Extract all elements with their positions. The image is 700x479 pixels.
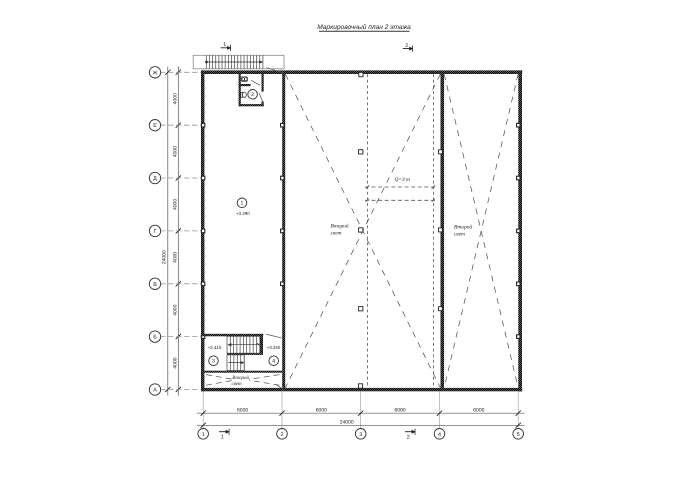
svg-text:2: 2 <box>281 432 284 438</box>
svg-text:4000: 4000 <box>172 357 178 368</box>
svg-text:6000: 6000 <box>237 407 248 413</box>
svg-text:4: 4 <box>438 432 441 438</box>
svg-text:Б: Б <box>153 335 157 341</box>
svg-text:Маркировочный план 2 этажа: Маркировочный план 2 этажа <box>317 24 411 31</box>
svg-text:4000: 4000 <box>172 146 178 157</box>
svg-text:Второй: Второй <box>232 375 249 381</box>
svg-text:4000: 4000 <box>172 252 178 263</box>
svg-text:Д: Д <box>153 176 157 182</box>
svg-text:2: 2 <box>251 92 254 98</box>
svg-text:+3.250: +3.250 <box>267 345 281 350</box>
svg-text:4000: 4000 <box>172 93 178 104</box>
svg-text:+2.410: +2.410 <box>208 345 222 350</box>
svg-text:6000: 6000 <box>473 407 484 413</box>
svg-text:свет: свет <box>331 230 342 236</box>
svg-text:24000: 24000 <box>161 250 167 264</box>
svg-text:А: А <box>153 388 157 394</box>
svg-text:+3.290: +3.290 <box>236 211 250 216</box>
svg-text:5: 5 <box>517 432 520 438</box>
svg-text:4: 4 <box>272 359 275 365</box>
svg-text:3: 3 <box>359 432 362 438</box>
svg-text:Второй: Второй <box>454 225 472 231</box>
svg-text:3: 3 <box>212 359 215 365</box>
svg-text:свет: свет <box>232 382 243 387</box>
svg-text:Г: Г <box>154 229 157 235</box>
svg-text:1: 1 <box>241 201 244 207</box>
svg-text:1: 1 <box>221 434 224 440</box>
svg-text:6000: 6000 <box>316 407 327 413</box>
svg-text:24000: 24000 <box>340 419 354 425</box>
svg-text:4000: 4000 <box>172 199 178 210</box>
svg-text:4000: 4000 <box>172 304 178 315</box>
svg-text:В: В <box>153 282 157 288</box>
svg-text:Второй: Второй <box>331 223 349 229</box>
svg-text:1: 1 <box>223 42 226 48</box>
svg-text:Е: Е <box>153 123 157 129</box>
svg-text:1: 1 <box>202 432 205 438</box>
svg-text:6000: 6000 <box>395 407 406 413</box>
svg-text:Ж: Ж <box>153 70 158 76</box>
svg-text:Q=3 т: Q=3 т <box>394 177 410 183</box>
svg-text:2: 2 <box>405 43 408 49</box>
svg-text:2: 2 <box>407 434 410 440</box>
svg-text:свет: свет <box>454 232 465 238</box>
